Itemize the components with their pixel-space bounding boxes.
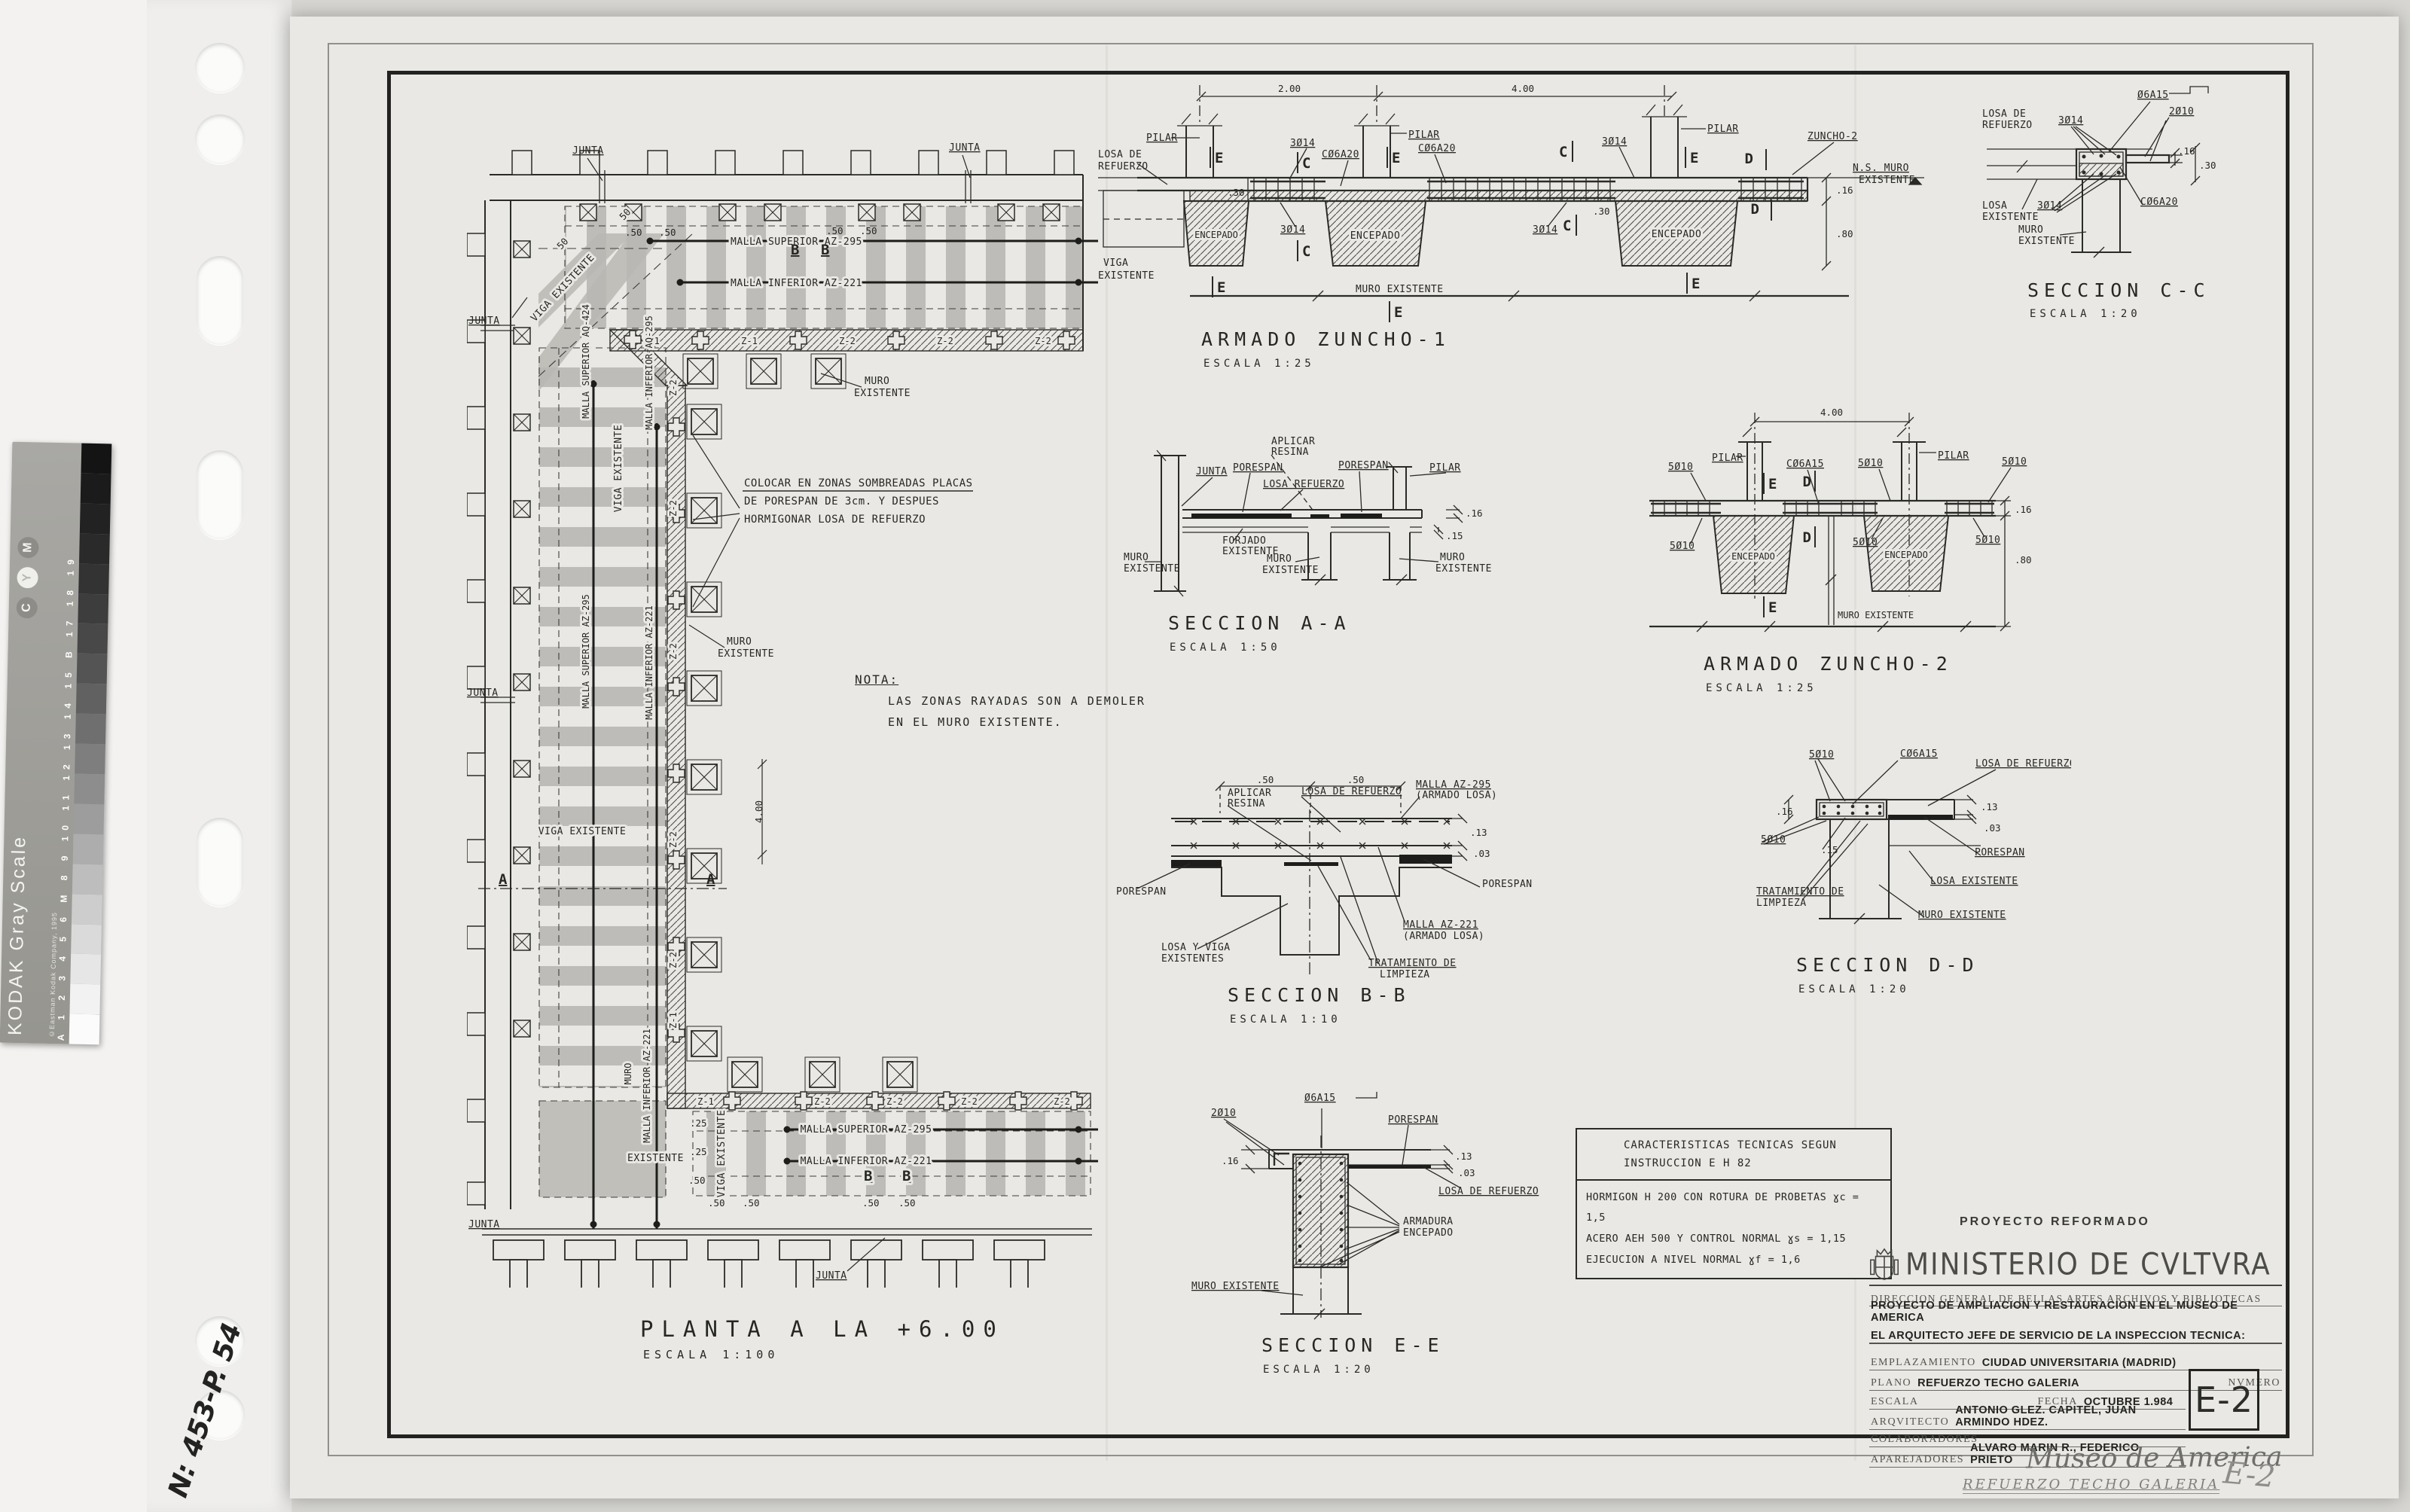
label-viga-existente: VIGA EXISTENTE (716, 1110, 728, 1198)
gray-step (69, 984, 100, 1015)
proyecto-line: PROYECTO DE AMPLIACION Y RESTAURACION EN… (1871, 1300, 2280, 1324)
label-existente: EXISTENTE (718, 648, 774, 660)
label-losa-de-refuerzo: LOSA DE REFUERZO (1301, 786, 1402, 797)
label-junta: JUNTA (816, 1270, 847, 1282)
gray-step (75, 714, 106, 745)
marker-e: E (1692, 276, 1700, 292)
label-pilar: PILAR (1146, 133, 1178, 144)
label-3014: 3Ø14 (1602, 136, 1627, 148)
detail-seccion-ee: Ø6A15 2Ø10 PORESPAN .16 .13 .03 LOSA DE … (1190, 1092, 1566, 1423)
escala-label: ESCALA (1871, 1396, 1918, 1408)
label-losa-existente: LOSA EXISTENTE (1930, 876, 2018, 887)
label-armado-losa: (ARMADO LOSA) (1403, 931, 1484, 942)
gray-step (75, 744, 105, 775)
marker-e: E (1768, 476, 1777, 492)
emplazamiento-value: CIUDAD UNIVERSITARIA (MADRID) (1982, 1357, 2177, 1369)
stamp-proyecto-reformado: PROYECTO REFORMADO (1960, 1215, 2150, 1229)
detail-title: SECCION D-D (1796, 954, 1979, 976)
detail-title: ARMADO ZUNCHO-1 (1201, 328, 1451, 350)
gray-step (74, 774, 105, 805)
emplazamiento-label: EMPLAZAMIENTO (1871, 1357, 1976, 1369)
detail-title: SECCION E-E (1261, 1334, 1444, 1356)
colaboradores-label: COLABORADORES (1871, 1434, 1978, 1446)
section-marker-a: A (499, 871, 508, 888)
label-encepado: ENCEPADO (1403, 1227, 1454, 1239)
label-encepado: ENCEPADO (1194, 230, 1238, 240)
dim-50: .50 (708, 1197, 725, 1209)
zone-z1: Z-1 (668, 1012, 679, 1029)
label-muro: MURO (623, 1063, 633, 1085)
label-pilar: PILAR (1408, 130, 1440, 141)
detail-title: SECCION C-C (2027, 279, 2210, 301)
detail-seccion-cc: LOSA DE REFUERZO 3Ø14 Ø6A15 2Ø10 .16 .30… (1981, 83, 2297, 346)
label-3014: 3Ø14 (2058, 115, 2083, 127)
label-aplicar: APLICAR (1228, 788, 1271, 799)
label-refuerzo: REFUERZO (1098, 161, 1149, 172)
label-c06a20: CØ6A20 (1418, 143, 1456, 154)
note-colocar-line1: COLOCAR EN ZONAS SOMBREADAS PLACAS (744, 477, 973, 489)
label-armadura: ARMADURA (1403, 1216, 1454, 1227)
label-losa-de-refuerzo: LOSA DE REFUERZO (1438, 1186, 1539, 1197)
label-existentes: EXISTENTES (1161, 953, 1224, 965)
label-2010: 2Ø10 (2169, 106, 2194, 117)
label-5010: 5Ø10 (1858, 458, 1883, 469)
label-junta: JUNTA (468, 1219, 500, 1230)
detail-title: ARMADO ZUNCHO-2 (1704, 653, 1953, 675)
zone-z2: Z-2 (839, 336, 856, 346)
punch-hole (197, 256, 243, 345)
ministry-crest-icon (1869, 1247, 1899, 1282)
zone-z2: Z-2 (1054, 1096, 1070, 1107)
dim-50: .50 (860, 225, 877, 236)
marker-e: E (1690, 150, 1698, 166)
label-viga-existente: VIGA EXISTENTE (538, 826, 627, 837)
section-marker-a: A (706, 871, 715, 888)
dim-50: .50 (688, 1175, 706, 1186)
label-2010: 2Ø10 (1211, 1108, 1236, 1119)
label-malla-inf-aq295: MALLA INFERIOR AQ-295 (644, 316, 654, 430)
gray-step (81, 474, 111, 505)
label-malla-sup-az295: MALLA SUPERIOR AZ-295 (581, 594, 591, 709)
dim-80: .80 (2015, 554, 2032, 565)
label-losa-de-refuerzo: LOSA DE REFUERZO (1975, 758, 2071, 770)
label-muro: MURO (865, 376, 889, 387)
label-existente: EXISTENTE (1435, 563, 1492, 575)
label-5010: 5Ø10 (1761, 834, 1786, 846)
plan-mesh-leaders (590, 238, 1098, 1229)
zone-z2: Z-2 (886, 1096, 903, 1107)
gray-step (80, 503, 111, 534)
zone-z2: Z-2 (668, 500, 679, 517)
label-muro: MURO (1267, 553, 1292, 565)
label-existente: EXISTENTE (1982, 212, 2039, 223)
dim-13: .13 (1981, 801, 1998, 812)
dim-400: 4.00 (1512, 83, 1534, 94)
dim-50: .50 (826, 225, 843, 236)
label-existente: EXISTENTE (1098, 270, 1155, 282)
label-existente: EXISTENTE (1124, 563, 1180, 575)
section-marker-b: B (821, 242, 829, 258)
label-c06a20: CØ6A20 (1322, 149, 1359, 160)
note-colocar-line3: HORMIGONAR LOSA DE REFUERZO (744, 514, 926, 526)
label-porespan: PORESPAN (1388, 1114, 1438, 1126)
label-forjado: FORJADO (1222, 535, 1266, 547)
dim-50: .50 (1257, 776, 1274, 785)
detail-scale: ESCALA 1:25 (1706, 682, 1817, 694)
zone-z2: Z-2 (961, 1096, 978, 1107)
kodak-y-circle: Y (17, 567, 38, 589)
label-encepado: ENCEPADO (1884, 550, 1928, 560)
label-pilar: PILAR (1712, 453, 1743, 464)
section-marker-b: B (791, 242, 799, 258)
handwritten-film-number: N: 453-P. 54 (163, 1319, 248, 1501)
label-3014: 3Ø14 (2037, 200, 2062, 212)
nota-heading: NOTA: (855, 672, 1149, 687)
dim-16: .16 (1836, 184, 1853, 196)
dim-50: .50 (625, 227, 642, 238)
label-malla-superior: MALLA SUPERIOR AZ-295 (801, 1124, 932, 1136)
marker-d: D (1751, 201, 1759, 218)
dim-13: .13 (1470, 827, 1487, 838)
aparejadores-label: APAREJADORES (1871, 1454, 1964, 1466)
gray-step (72, 864, 103, 895)
label-existente: EXISTENTE (1859, 175, 1915, 186)
marker-d: D (1745, 151, 1753, 167)
plano-label: PLANO (1871, 1377, 1911, 1389)
section-marker-b: B (902, 1168, 911, 1184)
label-existente: EXISTENTE (854, 388, 911, 399)
label-encepado: ENCEPADO (1652, 229, 1702, 240)
label-losa-refuerzo: LOSA REFUERZO (1263, 479, 1344, 490)
detail-seccion-aa: APLICAR RESINA JUNTA PORESPAN PORESPAN L… (1122, 429, 1619, 678)
punch-hole (195, 114, 245, 164)
handwritten-plano: REFUERZO TECHO GALERIA (1963, 1477, 2219, 1494)
label-malla-sup-aq424: MALLA SUPERIOR AQ-424 (581, 304, 591, 419)
dim-25: .25 (690, 1146, 707, 1157)
mesh-cross-marks (1191, 818, 1450, 849)
dim-400: 4.00 (1820, 407, 1843, 418)
label-zuncho-2: ZUNCHO-2 (1807, 131, 1858, 142)
label-muro: MURO (2018, 224, 2043, 236)
label-junta: JUNTA (1196, 466, 1228, 477)
dim-03: .03 (1458, 1167, 1475, 1178)
label-muro: MURO (1124, 552, 1149, 563)
label-losa-y-viga: LOSA Y VIGA (1161, 942, 1231, 953)
zone-z2: Z-2 (1035, 336, 1051, 346)
nota-line2: EN EL MURO EXISTENTE. (888, 715, 1149, 729)
gray-step (81, 444, 112, 474)
label-tratamiento: TRATAMIENTO DE (1368, 958, 1457, 969)
label-5010: 5Ø10 (1975, 535, 2000, 546)
binder-sleeve-strip (147, 0, 293, 1512)
label-tratamiento: TRATAMIENTO DE (1756, 886, 1844, 898)
detail-scale: ESCALA 1:20 (1263, 1364, 1374, 1376)
dim-15: .15 (1446, 530, 1463, 541)
label-ns-muro: N.S. MURO (1853, 163, 1909, 174)
label-resina: RESINA (1271, 447, 1309, 458)
label-losa: LOSA (1982, 200, 2007, 212)
dim-03: .03 (1984, 822, 2001, 834)
label-existente: EXISTENTE (627, 1153, 684, 1164)
gray-step (70, 954, 101, 985)
gray-step (76, 684, 107, 715)
label-c06a15: CØ6A15 (1900, 748, 1938, 760)
arquitecto-jefe-line: EL ARQUITECTO JEFE DE SERVICIO DE LA INS… (1871, 1330, 2245, 1342)
dim-13: .13 (1455, 1151, 1472, 1162)
label-aplicar: APLICAR (1271, 436, 1315, 447)
marker-e: E (1392, 150, 1400, 166)
plan-title: PLANTA A LA +6.00 (640, 1316, 1005, 1342)
kodak-gray-scale: KODAK Gray Scale ©Eastman Kodak Company,… (0, 442, 111, 1045)
dim-16: .16 (1466, 508, 1483, 519)
label-malla-az295: MALLA AZ-295 (1416, 779, 1491, 791)
detail-scale: ESCALA 1:20 (2030, 308, 2141, 320)
dim-15: .15 (1821, 844, 1838, 855)
marker-d: D (1803, 529, 1811, 546)
sheet-number-box: E-2 (2189, 1369, 2259, 1431)
dim-16: .16 (2015, 504, 2032, 515)
plan-title-block: PLANTA A LA +6.00 ESCALA 1:100 (640, 1316, 1005, 1361)
detail-armado-zuncho-2: 4.00 PILAR PILAR 5Ø10 5Ø10 5Ø10 5Ø10 5Ø1… (1649, 399, 2071, 738)
label-3014: 3Ø14 (1290, 138, 1315, 149)
dim-25: .25 (690, 1117, 707, 1129)
zone-z2: Z-2 (814, 1096, 831, 1107)
zone-z2: Z-2 (937, 336, 953, 346)
dim-16: .16 (1222, 1155, 1239, 1166)
dim-400: 4.00 (753, 800, 764, 823)
section-marker-b: B (864, 1168, 872, 1184)
dim-200: 2.00 (1278, 83, 1301, 94)
nota-line1: LAS ZONAS RAYADAS SON A DEMOLER (888, 694, 1149, 708)
tech-header-line2: INSTRUCCION E H 82 (1624, 1155, 1883, 1173)
dim-16: .16 (2178, 145, 2195, 157)
dim-30: .30 (1228, 187, 1245, 198)
label-pilar: PILAR (1429, 462, 1461, 474)
label-viga: VIGA (1103, 258, 1128, 269)
detail-scale: ESCALA 1:50 (1170, 642, 1281, 654)
detail-scale: ESCALA 1:25 (1203, 358, 1315, 370)
scanned-drawing-photo: JUNTA JUNTA MALLA SUPERIOR AZ-295 MALLA … (0, 0, 2410, 1512)
gray-step (71, 924, 102, 955)
tech-line2: ACERO AEH 500 Y CONTROL NORMAL ɣs = 1,15 (1586, 1229, 1883, 1250)
tech-line1: HORMIGON H 200 CON ROTURA DE PROBETAS ɣc… (1586, 1187, 1883, 1229)
zone-z1: Z-1 (741, 336, 758, 346)
dim-03: .03 (1473, 848, 1490, 859)
kodak-m-circle: M (17, 537, 39, 559)
gray-step (78, 623, 108, 654)
gray-step (69, 1014, 100, 1045)
film-number-area: N: 453-P. 54 (113, 1314, 384, 1510)
label-3014: 3Ø14 (1280, 224, 1305, 236)
detail-scale: ESCALA 1:20 (1798, 983, 1910, 995)
label-limpieza: LIMPIEZA (1380, 969, 1430, 980)
ministry-row: MINISTERIO DE CVLTVRA (1869, 1244, 2282, 1286)
marker-c: C (1559, 144, 1567, 160)
dim-50: .50 (659, 227, 676, 238)
label-porespan: PORESPAN (1338, 460, 1389, 471)
dim-80: .80 (1836, 228, 1853, 239)
gray-step (73, 803, 104, 834)
marker-e: E (1215, 150, 1223, 166)
label-junta: JUNTA (949, 142, 981, 154)
label-refuerzo: REFUERZO (1982, 120, 2033, 131)
gray-step (73, 834, 104, 864)
dim-50: .50 (862, 1197, 880, 1209)
label-muro-existente: MURO EXISTENTE (1918, 910, 2006, 921)
dim-50: .50 (743, 1197, 760, 1209)
marker-e: E (1768, 599, 1777, 616)
label-encepado: ENCEPADO (1731, 551, 1775, 562)
plano-value: REFUERZO TECHO GALERIA (1917, 1377, 2079, 1389)
label-malla-inf-az221: MALLA INFERIOR AZ-221 (644, 605, 654, 720)
plan-t-columns (493, 1240, 1045, 1288)
zone-z2: Z-2 (668, 643, 679, 660)
marker-c: C (1302, 243, 1310, 260)
detail-title: SECCION A-A (1168, 612, 1351, 634)
label-existente: EXISTENTE (2018, 236, 2075, 247)
arquitecto-value: ANTONIO GLEZ. CAPITEL, JUAN ARMINDO HDEZ… (1955, 1404, 2184, 1428)
label-viga-existente: VIGA EXISTENTE (613, 425, 624, 513)
marker-e: E (1217, 279, 1225, 296)
label-5010: 5Ø10 (1853, 537, 1878, 548)
gray-step (77, 654, 108, 684)
label-muro: MURO (1440, 552, 1465, 563)
label-3014: 3Ø14 (1533, 224, 1557, 236)
label-losa-de: LOSA DE (1982, 108, 2026, 120)
gray-step (72, 894, 102, 925)
tech-header-line1: CARACTERISTICAS TECNICAS SEGUN (1624, 1137, 1883, 1155)
label-porespan: PORESPAN (1116, 886, 1167, 898)
title-block: MINISTERIO DE CVLTVRA DIRECCION GENERAL … (1869, 1244, 2282, 1431)
label-malla-inferior: MALLA INFERIOR AZ-221 (642, 1029, 652, 1143)
label-5010: 5Ø10 (1809, 749, 1834, 761)
label-malla-inferior: MALLA INFERIOR AZ-221 (801, 1156, 932, 1167)
punch-hole (197, 818, 243, 907)
label-resina: RESINA (1228, 798, 1265, 809)
zone-z2: Z-2 (668, 952, 679, 968)
label-junta: JUNTA (467, 687, 499, 699)
gray-step (78, 563, 109, 594)
label-5010: 5Ø10 (1668, 462, 1693, 473)
dim-50: .50 (898, 1197, 916, 1209)
marker-c: C (1302, 155, 1310, 172)
punch-hole (197, 450, 243, 539)
dim-30: .30 (1593, 206, 1610, 217)
marker-d: D (1803, 474, 1811, 490)
label-armado-losa: (ARMADO LOSA) (1416, 790, 1497, 801)
label-5010: 5Ø10 (2002, 456, 2027, 468)
label-porespan: PORESPAN (1975, 847, 2025, 858)
marker-c: C (1563, 218, 1571, 234)
plan-scale: ESCALA 1:100 (643, 1348, 1005, 1361)
label-porespan: PORESPAN (1482, 879, 1533, 890)
label-encepado: ENCEPADO (1350, 230, 1401, 242)
nota-block: NOTA: LAS ZONAS RAYADAS SON A DEMOLER EN… (832, 672, 1149, 729)
marker-e: E (1394, 304, 1402, 321)
detail-scale: ESCALA 1:10 (1230, 1014, 1341, 1026)
detail-armado-zuncho-1: PILAR PILAR PILAR LOSA DE REFUERZO VIGA … (1092, 72, 1973, 373)
label-porespan: PORESPAN (1233, 462, 1283, 474)
zone-z1: Z-1 (697, 1096, 714, 1107)
gray-step (79, 533, 110, 564)
label-limpieza: LIMPIEZA (1756, 898, 1807, 909)
label-malla-inferior: MALLA INFERIOR AZ-221 (731, 278, 862, 289)
handwritten-sheet-number: E-2 (2222, 1456, 2277, 1495)
tech-line3: EJECUCION A NIVEL NORMAL ɣf = 1,6 (1586, 1250, 1883, 1271)
label-c06a20: CØ6A20 (2140, 197, 2178, 208)
geometry (1649, 413, 2011, 632)
label-muro: MURO (727, 636, 752, 648)
kodak-brand-text: KODAK Gray Scale (5, 614, 35, 1035)
label-06a15: Ø6A15 (1304, 1093, 1336, 1104)
label-muro-existente: MURO EXISTENTE (1191, 1281, 1280, 1292)
label-06a15: Ø6A15 (2137, 90, 2169, 101)
label-junta: JUNTA (468, 316, 500, 327)
label-muro-existente: MURO EXISTENTE (1356, 284, 1444, 295)
label-muro-existente: MURO EXISTENTE (1838, 610, 1914, 620)
ministry-name: MINISTERIO DE CVLTVRA (1905, 1247, 2271, 1282)
dim-16: .16 (1776, 806, 1793, 817)
label-losa-de: LOSA DE (1098, 149, 1142, 160)
label-malla-az221: MALLA AZ-221 (1403, 919, 1478, 931)
tech-characteristics-box: CARACTERISTICAS TECNICAS SEGUN INSTRUCCI… (1576, 1128, 1892, 1279)
note-colocar-line2: DE PORESPAN DE 3cm. Y DESPUES (744, 495, 939, 508)
label-pilar: PILAR (1707, 123, 1739, 135)
label-pilar: PILAR (1938, 450, 1969, 462)
gray-step (78, 593, 108, 624)
zone-z2: Z-2 (668, 831, 679, 848)
punch-hole (195, 43, 245, 93)
label-junta: JUNTA (572, 145, 604, 157)
dim-50: .50 (1347, 776, 1365, 785)
detail-title: SECCION B-B (1228, 984, 1411, 1006)
label-c06a15: CØ6A15 (1786, 459, 1824, 470)
dim-30: .30 (2199, 160, 2216, 171)
arquitecto-label: ARQVITECTO (1871, 1416, 1949, 1428)
detail-seccion-bb: .50 .50 MALLA AZ-295 (ARMADO LOSA) APLIC… (1115, 776, 1642, 1092)
label-5010: 5Ø10 (1670, 541, 1695, 552)
label-existente: EXISTENTE (1262, 565, 1319, 576)
detail-seccion-dd: 5Ø10 CØ6A15 LOSA DE REFUERZO .16 5Ø10 .1… (1755, 745, 2071, 1047)
zone-z2: Z-2 (668, 380, 679, 396)
